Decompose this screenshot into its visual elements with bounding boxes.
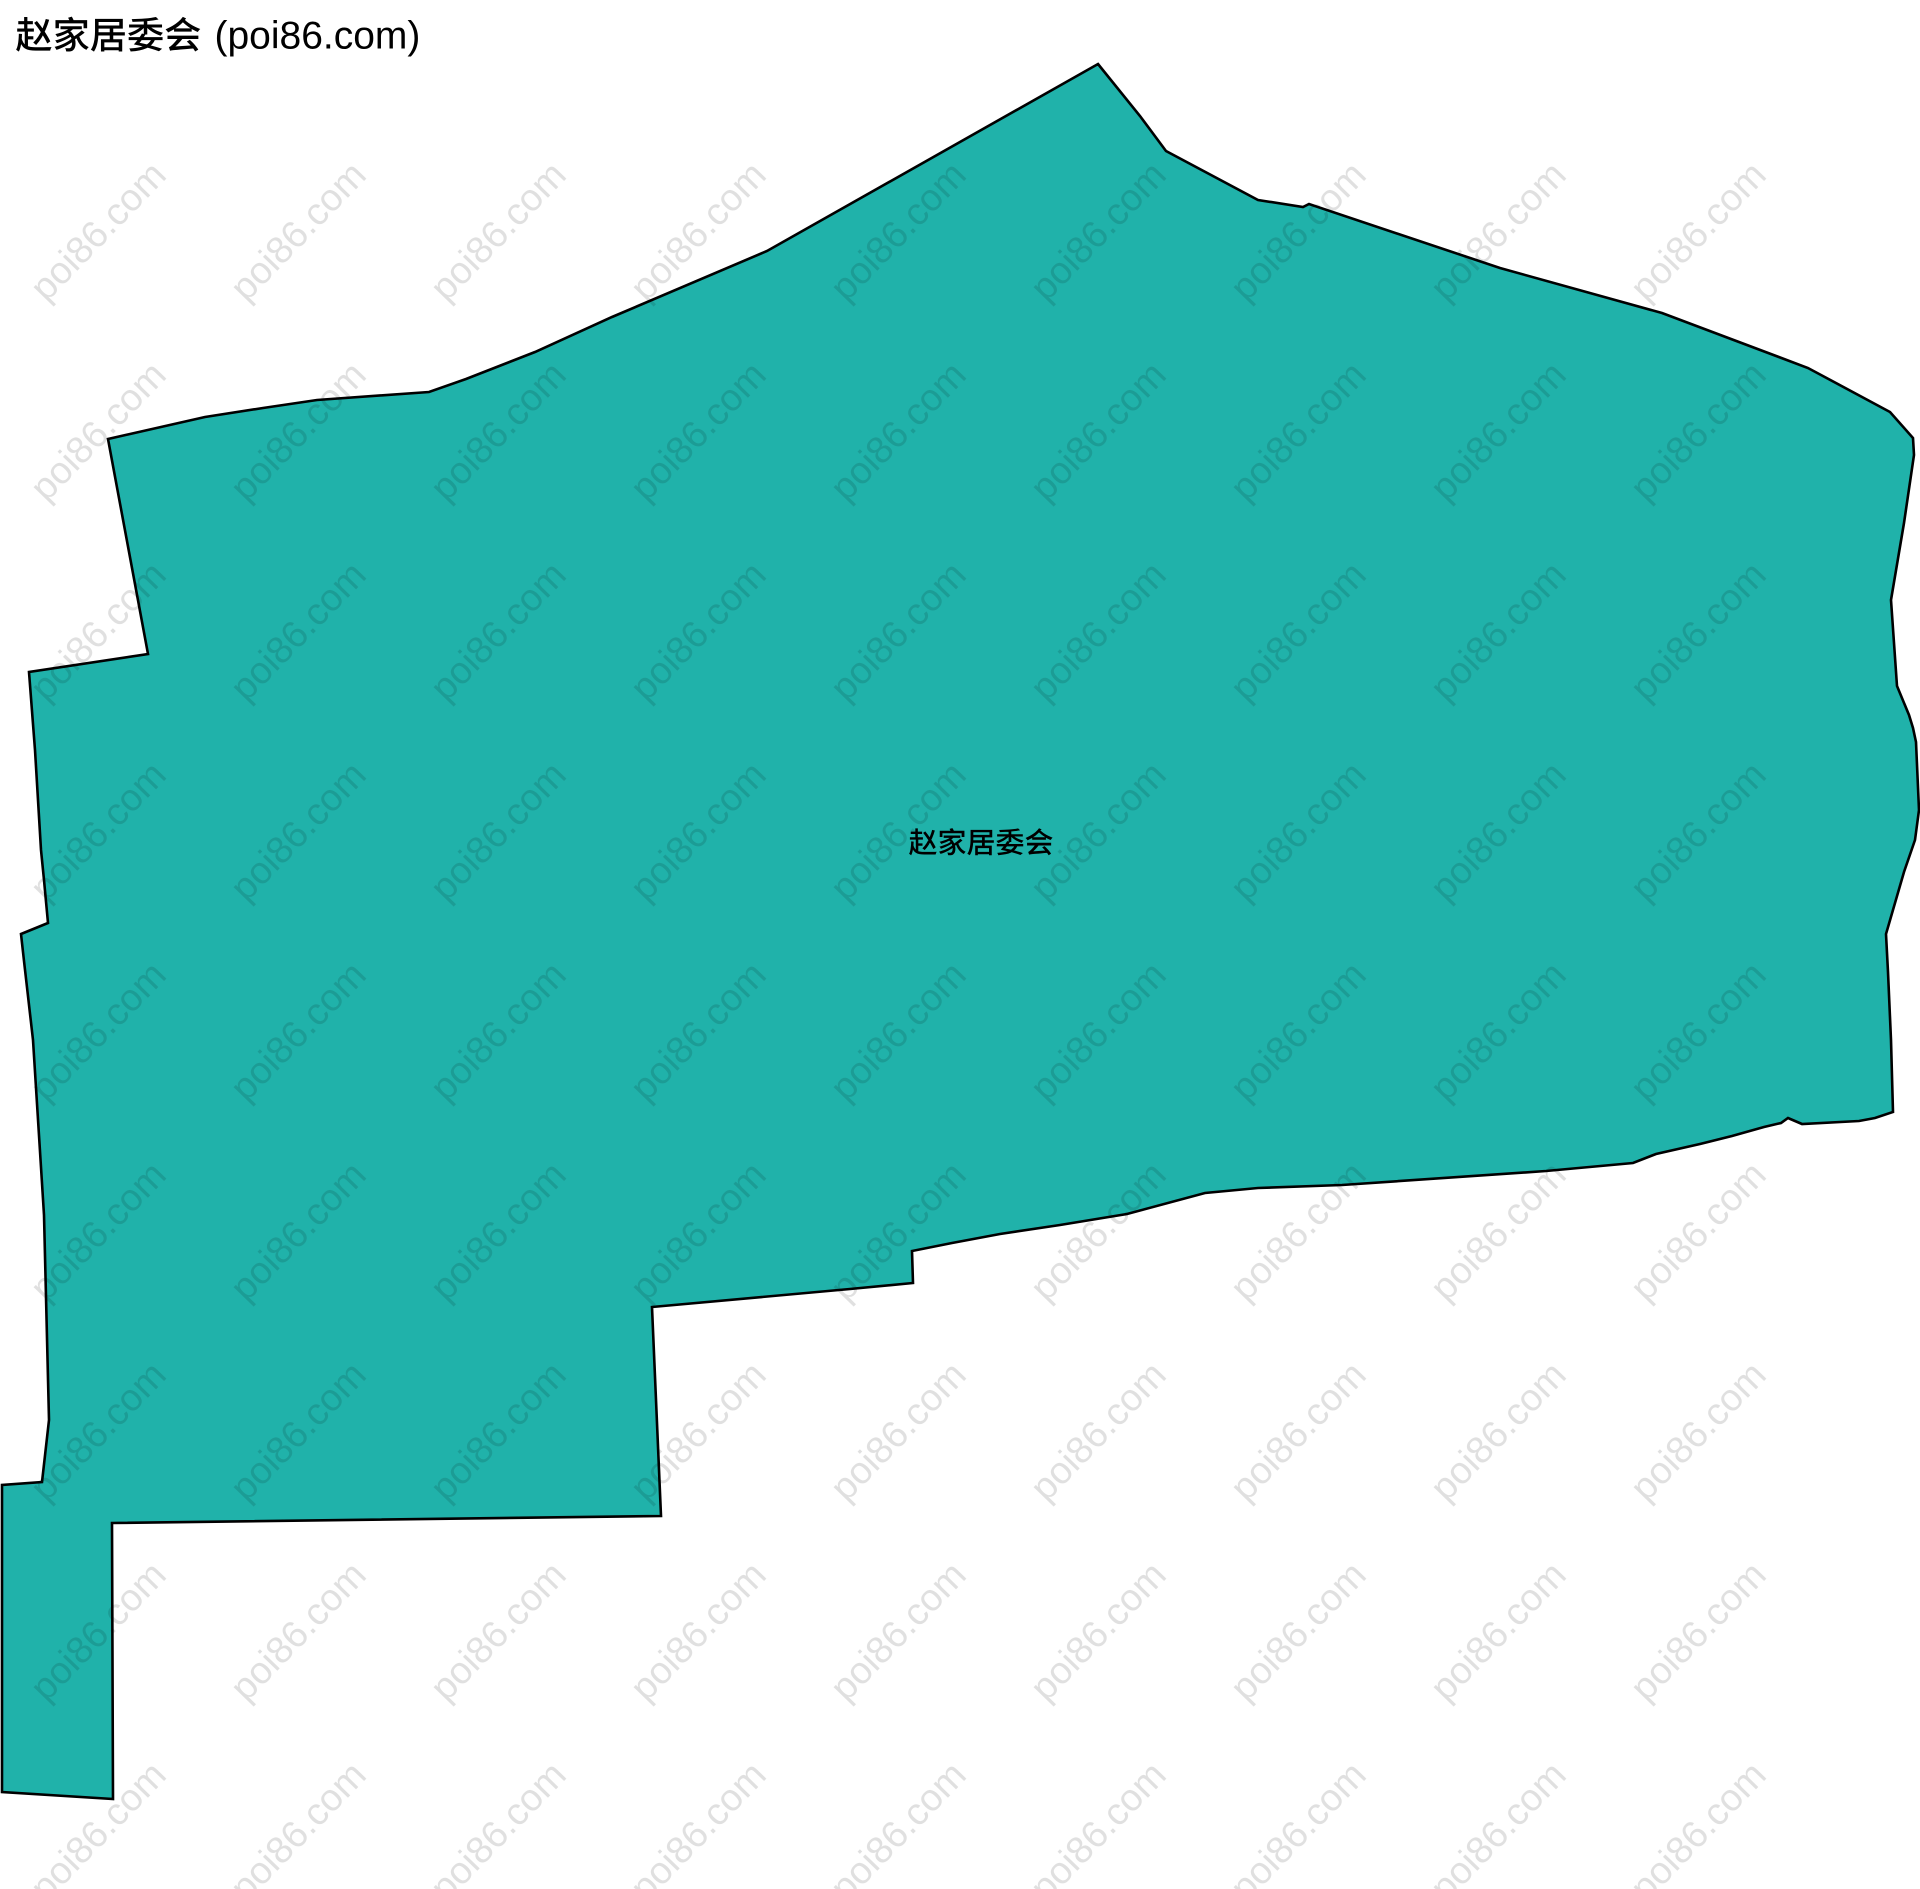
svg-text:poi86.com: poi86.com <box>423 154 575 309</box>
svg-text:poi86.com: poi86.com <box>1023 1754 1175 1889</box>
svg-text:poi86.com: poi86.com <box>223 154 375 309</box>
svg-text:poi86.com: poi86.com <box>223 1754 375 1889</box>
svg-text:poi86.com: poi86.com <box>623 1754 775 1889</box>
svg-text:poi86.com: poi86.com <box>1023 1554 1175 1709</box>
svg-text:poi86.com: poi86.com <box>223 1554 375 1709</box>
svg-text:poi86.com: poi86.com <box>1423 1754 1575 1889</box>
svg-text:poi86.com: poi86.com <box>1623 1154 1775 1309</box>
svg-text:poi86.com: poi86.com <box>423 1754 575 1889</box>
svg-text:poi86.com: poi86.com <box>1623 1354 1775 1509</box>
svg-text:poi86.com: poi86.com <box>1223 1754 1375 1889</box>
svg-text:poi86.com: poi86.com <box>823 1754 975 1889</box>
svg-text:poi86.com: poi86.com <box>1623 1554 1775 1709</box>
svg-text:poi86.com: poi86.com <box>1623 154 1775 309</box>
svg-text:poi86.com: poi86.com <box>23 154 175 309</box>
svg-text:poi86.com: poi86.com <box>1023 1354 1175 1509</box>
svg-text:poi86.com: poi86.com <box>823 1554 975 1709</box>
svg-text:poi86.com: poi86.com <box>1423 1554 1575 1709</box>
svg-text:(poi86.com): (poi86.com) <box>215 14 421 57</box>
svg-text:poi86.com: poi86.com <box>1223 1554 1375 1709</box>
svg-text:poi86.com: poi86.com <box>1423 1354 1575 1509</box>
svg-text:poi86.com: poi86.com <box>623 1554 775 1709</box>
svg-text:poi86.com: poi86.com <box>823 1354 975 1509</box>
svg-text:poi86.com: poi86.com <box>1623 1754 1775 1889</box>
svg-text:poi86.com: poi86.com <box>1223 1354 1375 1509</box>
svg-text:poi86.com: poi86.com <box>423 1554 575 1709</box>
